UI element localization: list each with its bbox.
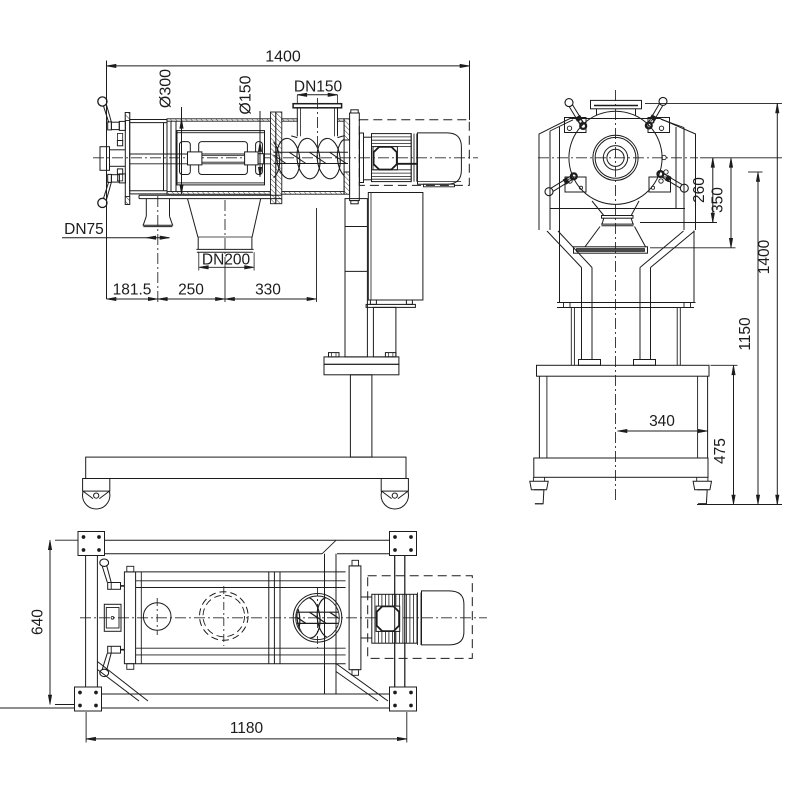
svg-text:640: 640 (30, 609, 47, 635)
svg-text:Ø300: Ø300 (158, 69, 175, 108)
svg-text:1400: 1400 (265, 49, 301, 66)
svg-text:350: 350 (710, 187, 727, 213)
svg-text:DN200: DN200 (202, 252, 251, 269)
svg-text:1150: 1150 (737, 317, 754, 351)
svg-text:Ø150: Ø150 (238, 75, 255, 114)
svg-text:181.5: 181.5 (113, 282, 152, 299)
svg-text:1180: 1180 (230, 720, 264, 737)
svg-text:330: 330 (255, 282, 281, 299)
svg-text:475: 475 (712, 438, 729, 464)
svg-text:250: 250 (178, 282, 204, 299)
svg-text:1400: 1400 (756, 239, 773, 274)
svg-text:340: 340 (649, 413, 675, 430)
svg-text:260: 260 (691, 177, 708, 203)
svg-text:DN75: DN75 (64, 221, 104, 238)
svg-text:DN150: DN150 (294, 78, 343, 95)
